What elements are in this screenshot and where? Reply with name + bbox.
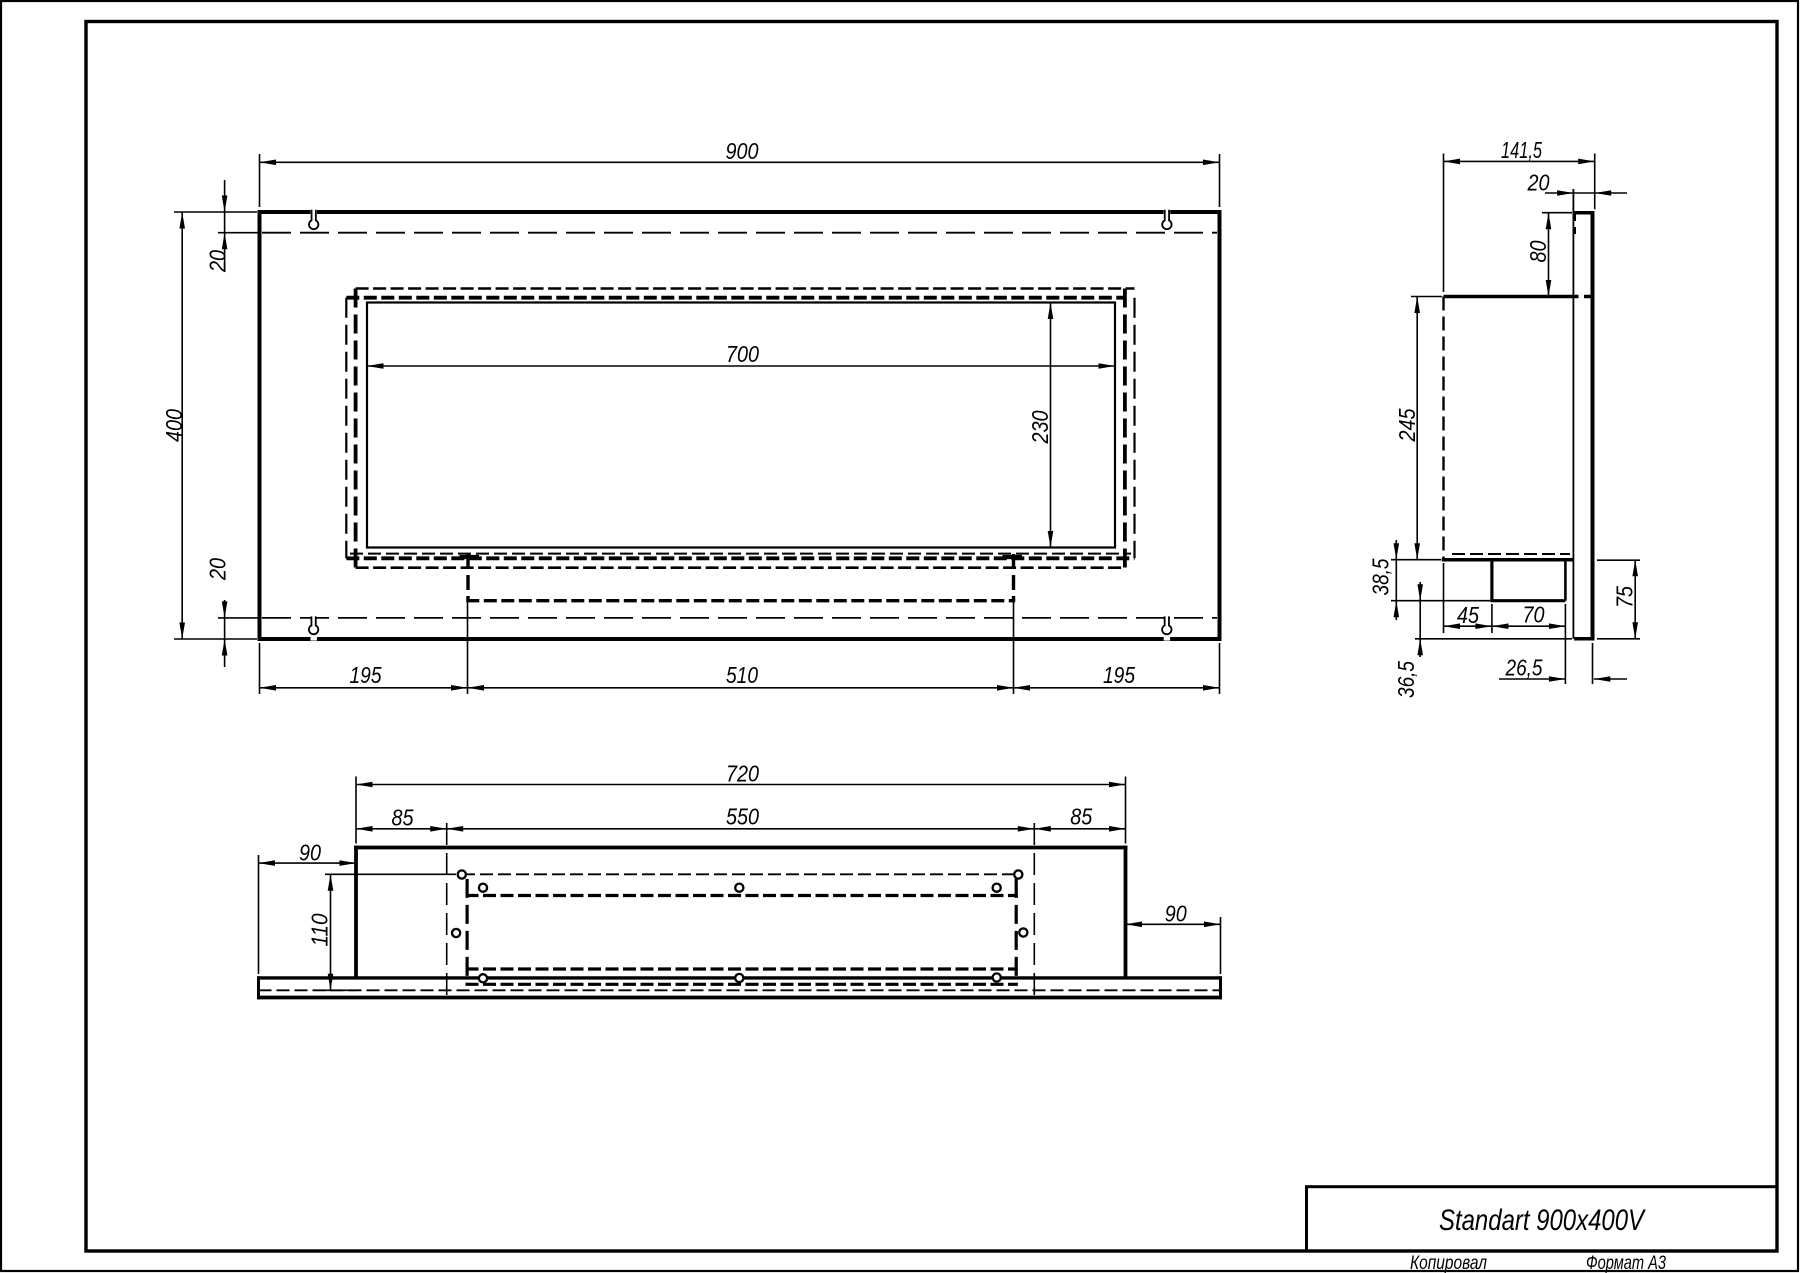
svg-text:90: 90 — [1165, 900, 1187, 926]
svg-text:75: 75 — [1612, 586, 1638, 608]
svg-text:510: 510 — [726, 662, 758, 688]
svg-text:195: 195 — [1103, 662, 1135, 688]
svg-text:230: 230 — [1027, 410, 1053, 444]
svg-text:245: 245 — [1394, 408, 1420, 442]
svg-text:110: 110 — [307, 913, 333, 946]
svg-text:90: 90 — [299, 840, 321, 866]
svg-text:20: 20 — [205, 558, 231, 581]
svg-text:550: 550 — [726, 804, 759, 830]
svg-text:85: 85 — [1070, 804, 1092, 830]
svg-text:70: 70 — [1523, 602, 1545, 628]
svg-text:20: 20 — [205, 250, 231, 273]
svg-text:38,5: 38,5 — [1368, 558, 1394, 595]
svg-text:36,5: 36,5 — [1393, 661, 1419, 698]
svg-text:26,5: 26,5 — [1505, 655, 1543, 681]
svg-text:141,5: 141,5 — [1501, 137, 1542, 163]
svg-text:Копировал: Копировал — [1410, 1253, 1487, 1273]
svg-text:85: 85 — [392, 805, 414, 831]
svg-text:20: 20 — [1527, 170, 1550, 196]
svg-text:900: 900 — [726, 138, 759, 164]
svg-text:45: 45 — [1457, 602, 1479, 628]
svg-text:720: 720 — [726, 761, 759, 787]
svg-text:Standart 900x400V: Standart 900x400V — [1439, 1204, 1646, 1237]
svg-text:Формат А3: Формат А3 — [1586, 1253, 1666, 1273]
svg-text:700: 700 — [726, 341, 759, 367]
svg-text:400: 400 — [161, 409, 187, 442]
svg-text:195: 195 — [350, 662, 382, 688]
svg-text:80: 80 — [1525, 240, 1551, 262]
